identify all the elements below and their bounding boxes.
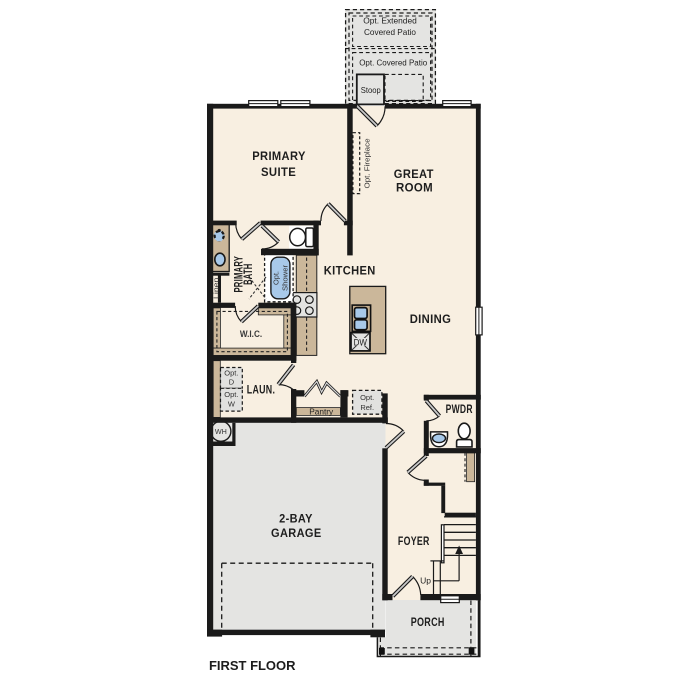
svg-text:BATH: BATH (241, 264, 255, 285)
svg-text:Opt.: Opt. (271, 271, 280, 285)
svg-text:DW: DW (354, 337, 368, 347)
svg-text:D: D (229, 377, 235, 386)
svg-text:Opt. Covered Patio: Opt. Covered Patio (359, 58, 427, 68)
svg-text:W.I.C.: W.I.C. (240, 329, 262, 339)
svg-text:ROOM: ROOM (396, 181, 433, 195)
svg-text:Opt.: Opt. (360, 393, 374, 402)
svg-text:Opt.: Opt. (224, 390, 238, 399)
svg-text:KITCHEN: KITCHEN (324, 264, 376, 278)
svg-text:GARAGE: GARAGE (271, 526, 322, 540)
svg-text:PRIMARY: PRIMARY (252, 149, 306, 163)
svg-text:DINING: DINING (410, 312, 452, 326)
svg-text:Opt.: Opt. (224, 368, 238, 377)
svg-text:2-BAY: 2-BAY (279, 511, 313, 525)
svg-text:WH: WH (215, 427, 227, 436)
svg-text:Opt. Extended: Opt. Extended (363, 15, 417, 25)
svg-text:Shower: Shower (280, 264, 289, 291)
svg-text:Covered Patio: Covered Patio (364, 27, 416, 37)
svg-text:W: W (228, 399, 236, 408)
svg-text:PWDR: PWDR (446, 402, 473, 416)
svg-text:Ref.: Ref. (360, 403, 374, 412)
svg-text:FIRST FLOOR: FIRST FLOOR (209, 658, 296, 673)
svg-text:PORCH: PORCH (411, 615, 445, 629)
svg-text:Up: Up (420, 576, 431, 586)
svg-text:SUITE: SUITE (261, 165, 296, 179)
svg-text:Opt. Fireplace: Opt. Fireplace (362, 139, 371, 189)
svg-text:Pantry: Pantry (309, 406, 334, 416)
svg-text:FOYER: FOYER (398, 534, 430, 548)
svg-text:LAUN.: LAUN. (247, 382, 276, 396)
svg-text:GREAT: GREAT (394, 167, 434, 181)
svg-text:Stoop: Stoop (361, 85, 381, 95)
